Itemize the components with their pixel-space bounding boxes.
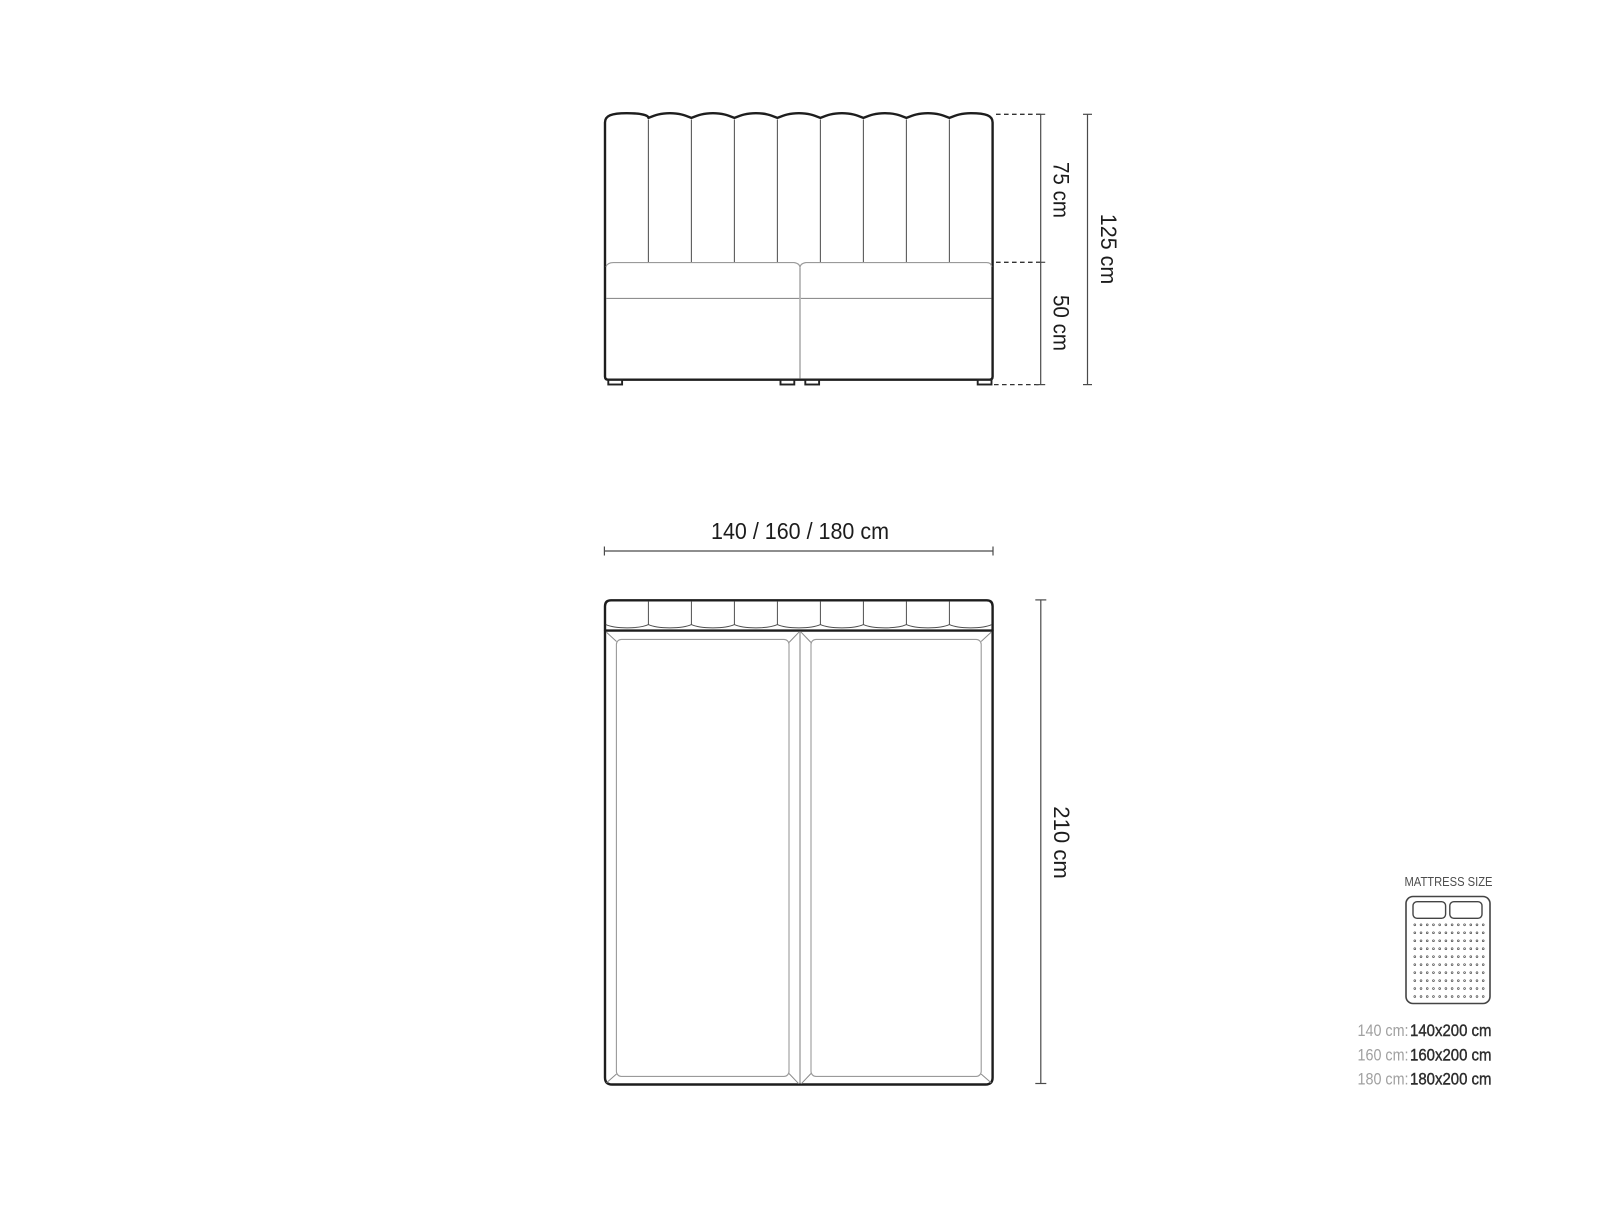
- svg-text:140 / 160 / 180 cm: 140 / 160 / 180 cm: [711, 518, 889, 544]
- svg-text:50 cm: 50 cm: [1048, 295, 1073, 351]
- svg-text:160x200 cm: 160x200 cm: [1410, 1046, 1492, 1064]
- svg-text:210 cm: 210 cm: [1049, 806, 1074, 879]
- svg-text:75 cm: 75 cm: [1048, 162, 1073, 218]
- svg-text:140x200 cm: 140x200 cm: [1410, 1022, 1492, 1040]
- svg-text:180 cm:: 180 cm:: [1358, 1071, 1409, 1089]
- svg-text:160 cm:: 160 cm:: [1358, 1046, 1409, 1064]
- svg-text:180x200 cm: 180x200 cm: [1410, 1071, 1492, 1089]
- svg-text:125 cm: 125 cm: [1096, 214, 1121, 284]
- svg-text:MATTRESS SIZE: MATTRESS SIZE: [1405, 874, 1493, 889]
- svg-text:140 cm:: 140 cm:: [1358, 1022, 1409, 1040]
